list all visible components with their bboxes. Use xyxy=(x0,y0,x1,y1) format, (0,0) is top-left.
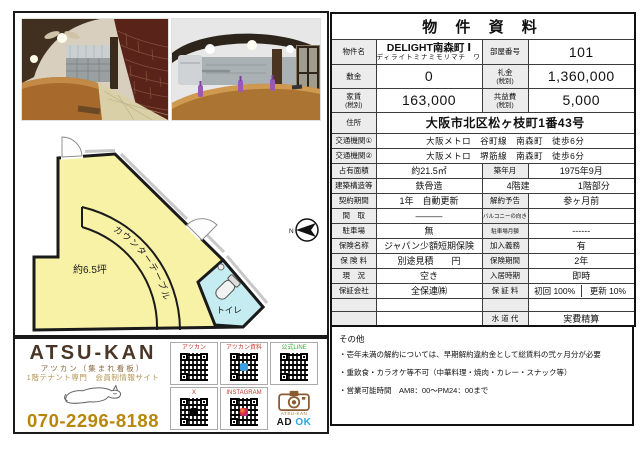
qr-cell-instagram: INSTAGRAM xyxy=(220,387,268,430)
qr-label-atsukan: アツカン xyxy=(182,344,206,352)
qr-code-shiryo xyxy=(230,353,258,381)
label-guarantee-fee: 保 証 料 xyxy=(482,283,528,298)
label-layout: 間 取 xyxy=(331,208,376,223)
balcony-value xyxy=(528,208,635,223)
guarantee-fee-initial: 初回 100% xyxy=(529,285,581,297)
contract-term-value: 1年 自動更新 xyxy=(376,193,482,208)
guarantee-fee-renewal: 更新 10% xyxy=(581,285,634,297)
label-parking: 駐車場 xyxy=(331,223,376,238)
qr-label-shiryo: アツカン資料 xyxy=(226,344,262,352)
qr-cell-shiryo: アツカン資料 xyxy=(220,342,268,385)
photo-interior-bar-2 xyxy=(171,18,321,121)
qr-label-instagram: INSTAGRAM xyxy=(226,389,261,397)
north-label: N xyxy=(289,228,294,235)
property-name-kana: ディライトミナミモリマチ ワン xyxy=(377,54,482,62)
layout-value: ――― xyxy=(376,208,482,223)
label-move-in: 入居時期 xyxy=(482,268,528,283)
qr-label-line: 公式LINE xyxy=(281,344,306,352)
label-water-fee: 水 道 代 xyxy=(482,311,528,326)
label-cancellation-notice: 解約予告 xyxy=(482,193,528,208)
ad-label: AD xyxy=(277,417,292,428)
label-insurance-term: 保険期間 xyxy=(482,253,528,268)
insurance-term-value: 2年 xyxy=(528,253,635,268)
compass-icon: N xyxy=(289,219,318,241)
qr-code-instagram xyxy=(230,398,258,426)
sheet-title: 物 件 資 料 xyxy=(331,13,635,39)
label-property-name: 物件名 xyxy=(331,39,376,64)
empty-label-cell xyxy=(331,311,376,326)
photo-interior-bar-1 xyxy=(21,18,169,121)
empty-value-cell xyxy=(528,298,635,311)
premium-value: 別途見積 円 xyxy=(376,253,482,268)
toilet-label: トイレ xyxy=(216,305,242,315)
address-value: 大阪市北区松ヶ枝町1番43号 xyxy=(376,112,635,133)
label-premium: 保 険 料 xyxy=(331,253,376,268)
water-fee-value: 実費精算 xyxy=(528,311,635,326)
guarantee-fee-cell: 初回 100% 更新 10% xyxy=(528,283,635,298)
photo-interior-2-image xyxy=(172,19,320,120)
label-parking-fee: 駐車場月額 xyxy=(482,223,528,238)
note-item-1: ・壱年未満の解約については、早期解約違約金として総賃料の弐ヶ月分が必要 xyxy=(339,346,625,364)
note-item-2: ・重飲食・カラオケ等不可（中華料理・焼肉・カレー・スナック等） xyxy=(339,364,625,382)
notes-title: その他 xyxy=(339,332,625,346)
door-arc-entrance xyxy=(62,137,82,157)
structure-value: 鉄骨造 xyxy=(376,178,482,193)
agency-subtitle: アツカン（集まれ看板） xyxy=(17,364,169,373)
agency-branding: ATSU-KAN アツカン（集まれ看板） 1階テナント専門 会員制情報サイト 0… xyxy=(17,342,169,430)
floors-value: 4階建 xyxy=(507,179,530,192)
move-in-value: 即時 xyxy=(528,268,635,283)
qr-cell-x: X xyxy=(170,387,218,430)
property-spec-table: 物 件 資 料 物件名 DELIGHT南森町 Ⅰ ディライトミナミモリマチ ワン… xyxy=(330,12,636,327)
label-common-fee: 共益費(税別) xyxy=(482,88,528,112)
label-status: 現 況 xyxy=(331,268,376,283)
common-fee-value: 5,000 xyxy=(528,88,635,112)
guarantor-value: 全保連㈱ xyxy=(376,283,482,298)
phone-number: 070-2296-8188 xyxy=(17,411,169,431)
key-money-value: 1,360,000 xyxy=(528,64,635,88)
property-sheet: 物 件 資 料 物件名 DELIGHT南森町 Ⅰ ディライトミナミモリマチ ワン… xyxy=(330,12,634,426)
floor-area-value: 約21.5㎡ xyxy=(376,163,482,178)
label-deposit: 敷金 xyxy=(331,64,376,88)
property-name-cell: DELIGHT南森町 Ⅰ ディライトミナミモリマチ ワン xyxy=(376,39,482,64)
label-address: 住所 xyxy=(331,112,376,133)
qr-label-x: X xyxy=(192,389,196,397)
empty-label-cell xyxy=(331,298,376,311)
camera-icon xyxy=(278,390,310,411)
parking-fee-value: ------ xyxy=(528,223,635,238)
agency-logo: ATSU-KAN xyxy=(17,342,169,364)
label-floor-area: 占有面積 xyxy=(331,163,376,178)
agency-panel: ATSU-KAN アツカン（集まれ看板） 1階テナント専門 会員制情報サイト 0… xyxy=(13,337,329,434)
deposit-value: 0 xyxy=(376,64,482,88)
access-1-value: 大阪メトロ 谷町線 南森町 徒歩6分 xyxy=(376,133,635,148)
label-balcony: バルコニーの向き xyxy=(482,208,528,223)
label-contract-term: 契約期間 xyxy=(331,193,376,208)
agency-tagline: 1階テナント専門 会員制情報サイト xyxy=(17,373,169,383)
parking-value: 無 xyxy=(376,223,482,238)
built-date-value: 1975年9月 xyxy=(528,163,635,178)
qr-code-atsukan xyxy=(180,353,208,381)
status-value: 空き xyxy=(376,268,482,283)
empty-value-cell xyxy=(376,298,482,311)
qr-code-grid: アツカン アツカン資料 公式LINE X INSTAGRAM xyxy=(170,342,324,430)
floors-cell: 4階建 1階部分 xyxy=(482,178,635,193)
label-room-number: 部屋番号 xyxy=(482,39,528,64)
label-insurance-duty: 加入義務 xyxy=(482,238,528,253)
qr-cell-atsukan: アツカン xyxy=(170,342,218,385)
notes-section: その他 ・壱年未満の解約については、早期解約違約金として総賃料の弐ヶ月分が必要 … xyxy=(330,327,634,426)
qr-code-x xyxy=(180,398,208,426)
access-2-value: 大阪メトロ 堺筋線 南森町 徒歩6分 xyxy=(376,148,635,163)
room-number: 101 xyxy=(528,39,635,64)
label-built-date: 築年月 xyxy=(482,163,528,178)
label-insurance-name: 保険名称 xyxy=(331,238,376,253)
ok-label: OK xyxy=(295,417,311,428)
label-structure: 建築構造等 xyxy=(331,178,376,193)
floor-area-label: 約6.5坪 xyxy=(73,263,107,276)
sleeping-cat-icon xyxy=(55,384,131,406)
empty-value-cell xyxy=(376,311,482,326)
note-item-3: ・営業可能時間 AM8：00～PM24：00まで xyxy=(339,382,625,400)
qr-cell-line: 公式LINE xyxy=(270,342,318,385)
left-panel: カウンターテーブル 約6.5坪 トイレ N xyxy=(13,11,329,337)
label-access-2: 交通機関② xyxy=(331,148,376,163)
label-guarantor: 保証会社 xyxy=(331,283,376,298)
rent-value: 163,000 xyxy=(376,88,482,112)
sink-icon xyxy=(218,264,224,270)
label-key-money: 礼金(税別) xyxy=(482,64,528,88)
ad-ok-badge: ATSU-KAN AD OK xyxy=(270,387,318,430)
empty-label-cell xyxy=(482,298,528,311)
cancellation-notice-value: 参ヶ月前 xyxy=(528,193,635,208)
floor-part-value: 1階部分 xyxy=(578,179,610,192)
insurance-name-value: ジャパン少額短期保険 xyxy=(376,238,482,253)
floor-plan: カウンターテーブル 約6.5坪 トイレ N xyxy=(15,121,327,333)
label-rent: 家賃(税別) xyxy=(331,88,376,112)
photo-interior-1-image xyxy=(22,19,168,120)
property-name: DELIGHT南森町 Ⅰ xyxy=(377,42,482,54)
qr-code-line xyxy=(280,353,308,381)
insurance-duty-value: 有 xyxy=(528,238,635,253)
label-access-1: 交通機関① xyxy=(331,133,376,148)
